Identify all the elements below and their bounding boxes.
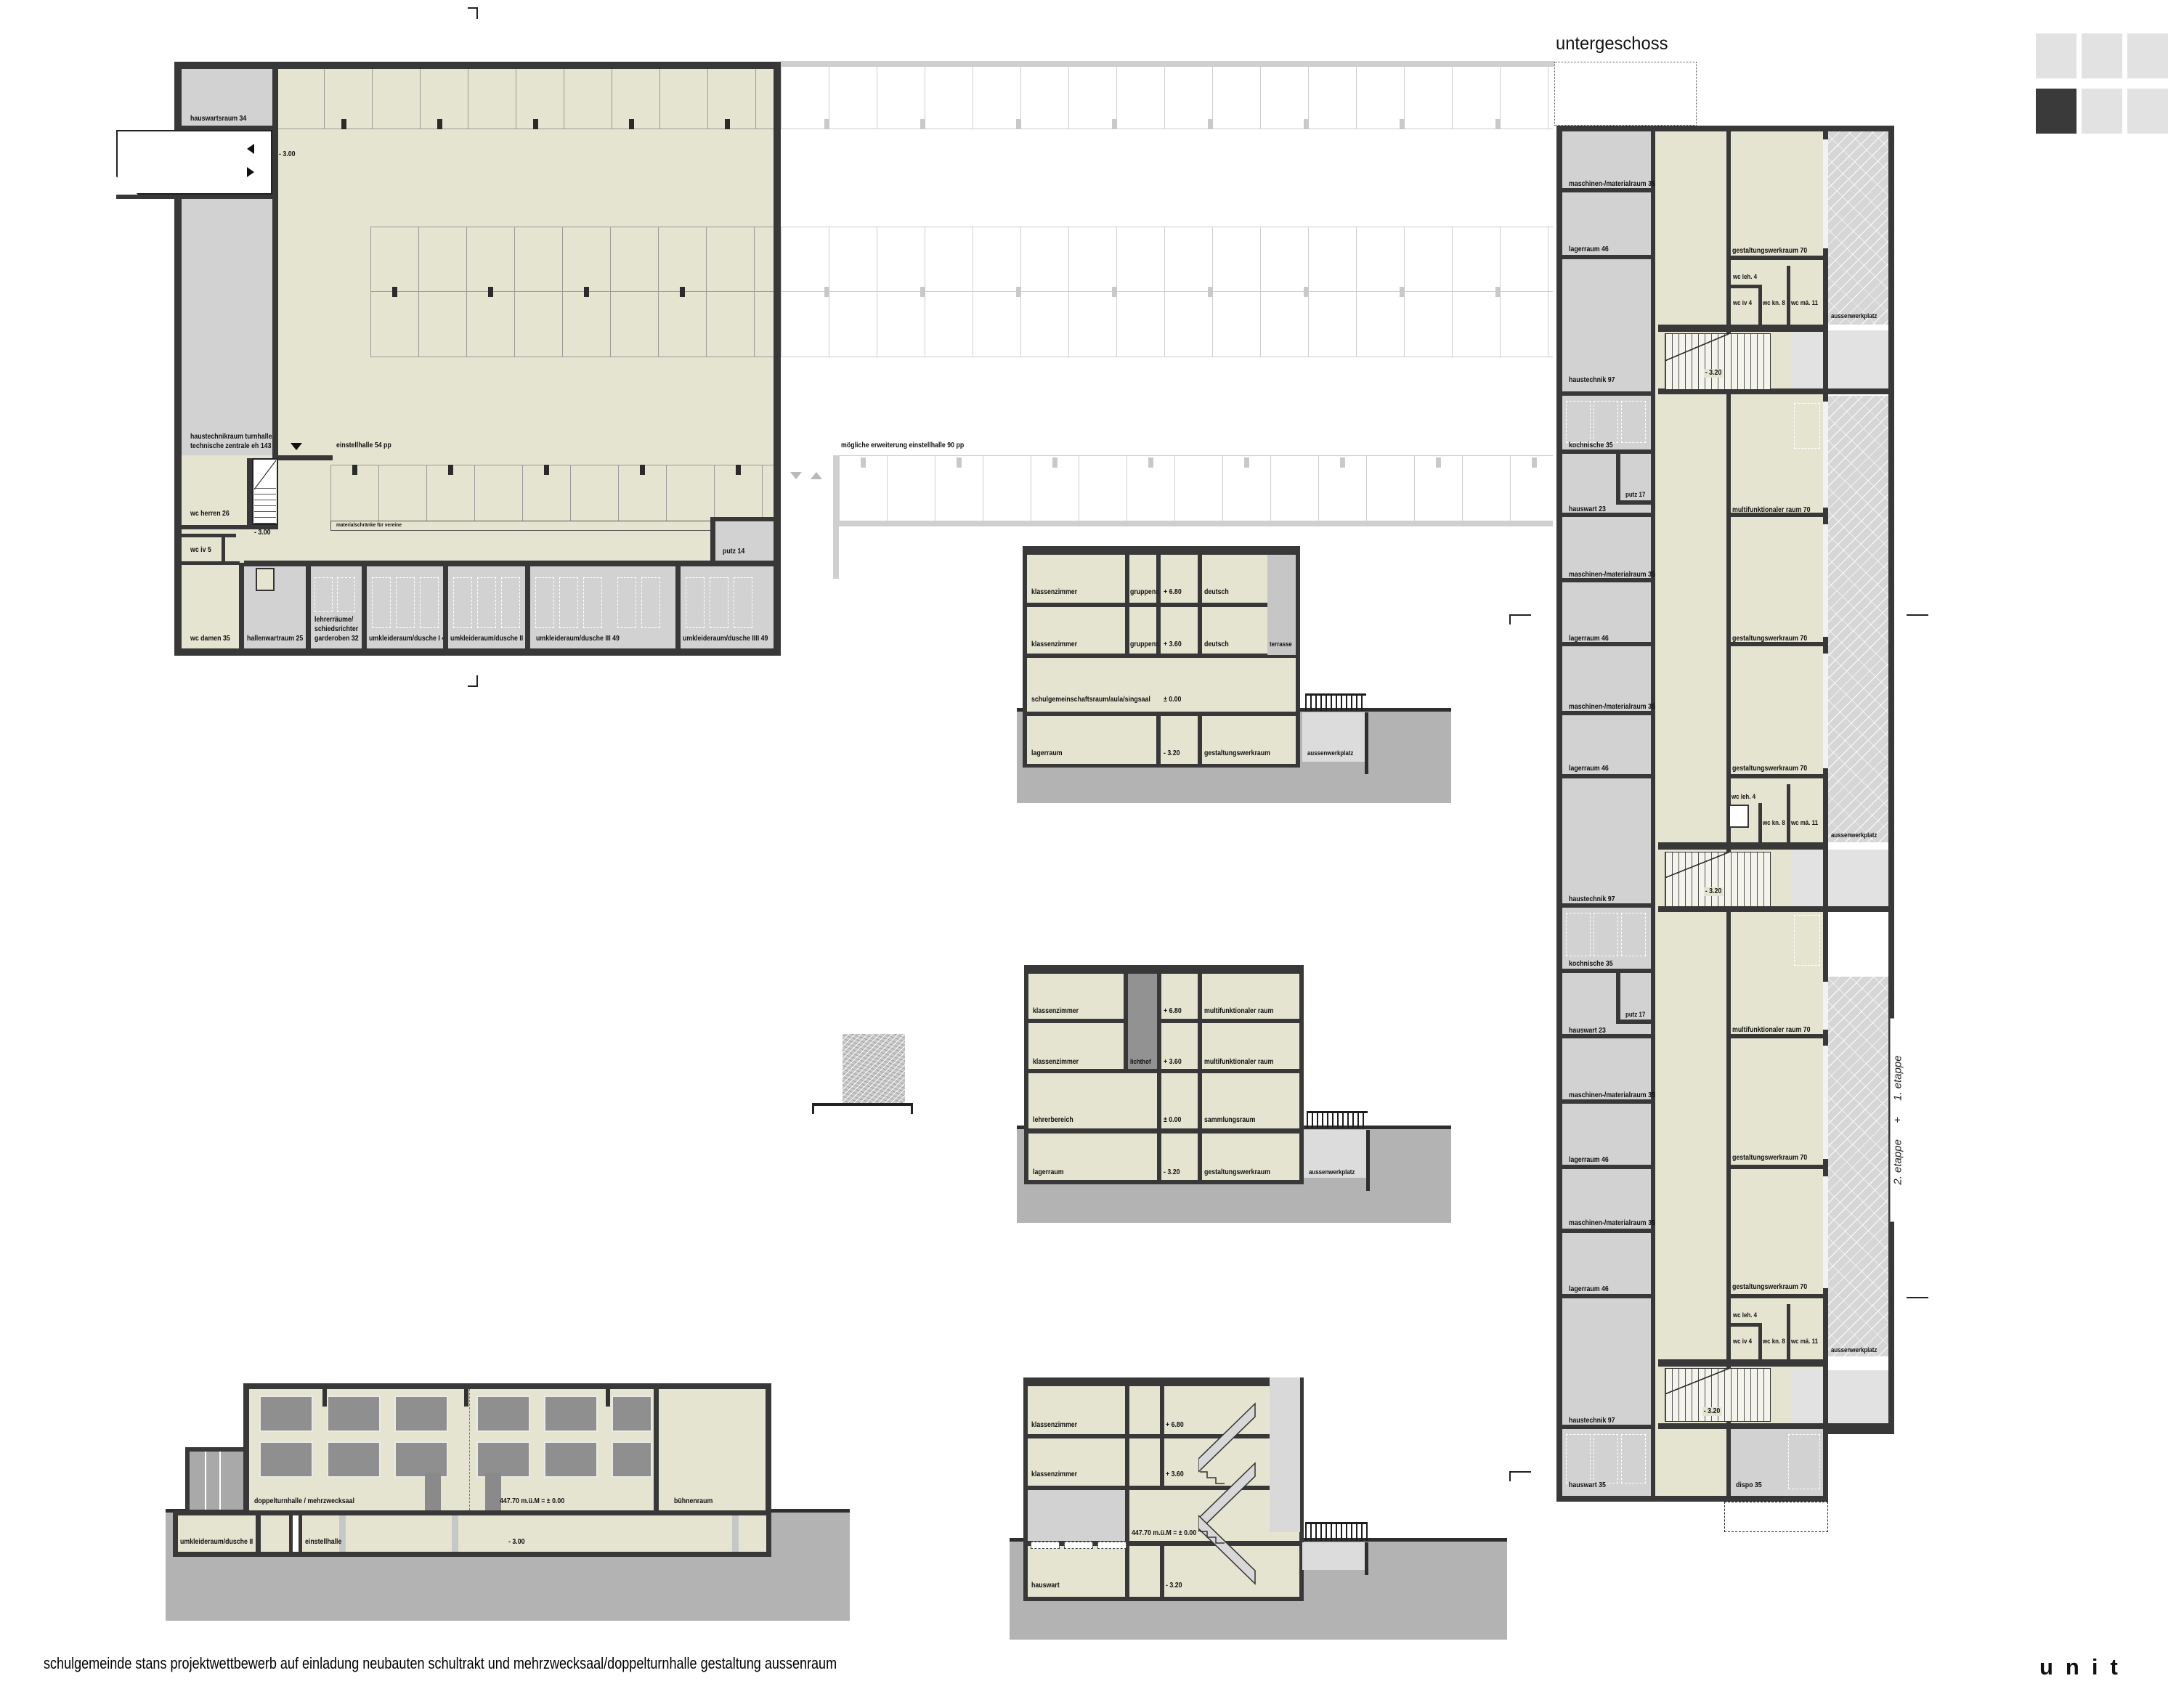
core-column <box>1270 1377 1300 1532</box>
room-label: maschinen-/materialraum 35 <box>1569 703 1655 712</box>
level-label: + 3.60 <box>1164 1058 1182 1067</box>
wall <box>174 126 272 130</box>
level-label: ± 0.00 <box>1164 1116 1181 1125</box>
basement-column <box>339 1515 346 1552</box>
room-label: multifunktionaler raum <box>1204 1058 1273 1067</box>
wall <box>306 566 311 648</box>
wall <box>1125 1490 1129 1541</box>
ramp-arrow-left-icon <box>247 144 254 154</box>
hall-window <box>259 1441 313 1478</box>
room-label: terrasse <box>1270 640 1292 648</box>
extension-edge <box>833 521 1553 526</box>
window-strip <box>1823 524 1828 637</box>
hall-label: einstellhalle 54 pp <box>336 441 391 450</box>
room-label: gestaltungswerkraum <box>1204 749 1270 758</box>
fixture <box>1594 913 1618 956</box>
roof-post <box>464 1389 468 1407</box>
room-label: wc iv 5 <box>190 546 211 555</box>
level-label: + 3.60 <box>1166 1470 1184 1479</box>
wall <box>1658 1359 1823 1367</box>
fixture <box>337 577 355 612</box>
room-label: gruppenr. <box>1130 640 1160 649</box>
wall <box>174 534 236 537</box>
level-label: - 3.20 <box>1704 887 1723 896</box>
level-label: 447.70 m.ü.M = ± 0.00 <box>500 1497 564 1506</box>
level-label: - 3.20 <box>1704 369 1723 378</box>
room-label: hauswart 23 <box>1569 1027 1606 1035</box>
room-label: klassenzimmer <box>1031 1421 1077 1430</box>
wall <box>1787 1304 1790 1359</box>
wall <box>1731 285 1761 288</box>
fixture <box>1794 403 1820 449</box>
stair-diagonal <box>254 460 276 489</box>
etappe-plus-icon: + <box>1892 1117 1904 1123</box>
wall <box>654 1389 659 1510</box>
glass-mullion <box>219 1452 221 1510</box>
roof-post <box>606 1389 610 1407</box>
fixture <box>1566 1434 1591 1484</box>
legend-square <box>2127 33 2168 78</box>
wall <box>1726 774 1828 778</box>
room-haustechnik <box>1562 259 1651 396</box>
column-markers <box>341 119 774 129</box>
hall-door <box>425 1473 441 1510</box>
room-label: putz 14 <box>723 548 744 556</box>
stair-zigzag <box>1198 1386 1271 1597</box>
room-label: haustechnik 97 <box>1569 895 1615 904</box>
area-label: aussenwerkplatz <box>1307 749 1353 757</box>
wall <box>1658 842 1823 850</box>
section-mark <box>468 7 478 9</box>
dotted-outline <box>1554 62 1697 126</box>
wall <box>525 566 530 648</box>
room-label: hallenwartraum 25 <box>247 635 303 643</box>
room-label: kochnische 35 <box>1569 960 1613 969</box>
level-label: - 3.00 <box>254 529 271 537</box>
room-label: doppelturnhalle / mehrzwecksaal <box>254 1497 354 1506</box>
wc-label: wc leh. 4 <box>1733 1311 1757 1319</box>
wall <box>1198 555 1202 603</box>
fixture <box>396 577 415 628</box>
retaining-wall <box>1366 1130 1370 1191</box>
retaining-wall <box>1365 712 1368 774</box>
wc-label: wc kn. 8 <box>1763 1338 1785 1345</box>
stair-landing-ext <box>1792 330 1888 388</box>
wall <box>1726 1034 1828 1038</box>
fixture <box>1594 401 1618 443</box>
hall-annex-glass <box>190 1452 243 1510</box>
fixture <box>1621 913 1646 956</box>
hall-window <box>476 1396 530 1432</box>
level-label: + 6.80 <box>1164 588 1182 597</box>
wall <box>443 566 448 648</box>
room-label: wc damen 35 <box>190 635 230 643</box>
tree-post <box>911 1103 913 1114</box>
retaining-wall <box>1365 1542 1368 1575</box>
section-mark <box>1509 1471 1511 1481</box>
drawing-sheet: untergeschoss materialschränke für verei… <box>0 0 2184 1689</box>
room-label: umkleideraum/dusche II 49 <box>450 635 532 643</box>
wc-label: wc mä. 11 <box>1791 1338 1818 1345</box>
aussenwerkplatz-area <box>1828 396 1888 842</box>
ramp-link-down-icon <box>790 472 802 479</box>
room-label: umkleideraum/dusche IIII 49 <box>683 635 768 643</box>
ramp-arrow-right-icon <box>247 167 254 177</box>
hall-window <box>327 1441 381 1478</box>
window-strip <box>1823 1176 1828 1288</box>
section-mark <box>1509 1471 1531 1473</box>
wall <box>1758 285 1762 325</box>
wc-label: wc mä. 11 <box>1791 819 1818 826</box>
fixture <box>453 577 472 628</box>
hall-window <box>544 1396 598 1432</box>
lichthof-shaft <box>1128 974 1157 1069</box>
level-label: - 3.20 <box>1166 1582 1182 1590</box>
room-label: einstellhalle <box>305 1538 341 1547</box>
wall <box>710 517 715 561</box>
extension-edge <box>781 61 1554 67</box>
wall <box>1124 974 1128 1069</box>
hall-window <box>544 1441 598 1478</box>
room-label: garderoben 32 <box>314 635 359 643</box>
room-label: hauswart 23 <box>1569 505 1606 514</box>
wall <box>1198 1134 1202 1180</box>
wall <box>174 525 278 529</box>
room-label: lagerraum 46 <box>1569 245 1609 254</box>
level-label: - 3.00 <box>279 150 296 159</box>
wall <box>244 561 774 566</box>
stair-diagonal <box>1665 1368 1730 1394</box>
gap <box>1828 842 1888 850</box>
stair-diagonal <box>1665 852 1730 878</box>
legend-square-active <box>2036 89 2077 134</box>
wall <box>1787 784 1790 842</box>
window-strip <box>1823 1046 1828 1159</box>
wc-label: wc iv 4 <box>1733 1338 1752 1345</box>
room-label: schulgemeinschaftsraum/aula/singsaal <box>1031 696 1150 704</box>
fixture <box>1794 915 1820 966</box>
wall <box>1125 555 1129 603</box>
room-label: klassenzimmer <box>1033 1007 1079 1016</box>
fixture <box>617 577 636 628</box>
wall <box>222 534 225 565</box>
room-label: hauswart <box>1031 1582 1060 1590</box>
section-mark <box>1509 614 1511 624</box>
window-strip <box>1823 982 1828 1030</box>
railing <box>1305 1522 1368 1541</box>
etappe-2-label: 2. etappe <box>1892 1139 1904 1185</box>
column-markers <box>392 287 774 297</box>
etappe-1-label: 1. etappe <box>1892 1055 1904 1101</box>
level-label: - 3.00 <box>508 1538 525 1547</box>
wall <box>1726 256 1828 260</box>
wall <box>1731 1323 1761 1327</box>
room-label: gestaltungswerkraum 70 <box>1732 247 1807 256</box>
etappe-marker: 2. etappe + 1. etappe <box>1891 1019 1906 1222</box>
legend-square <box>2082 89 2122 134</box>
stair-landing-ext <box>1792 1370 1888 1429</box>
gap <box>1828 325 1888 330</box>
railing <box>1307 1111 1368 1128</box>
page-title: untergeschoss <box>1556 35 1668 53</box>
unit-logo: unit <box>2039 1656 2130 1678</box>
room-label: haustechnikraum turnhalle/ <box>190 433 274 441</box>
fixture <box>1064 1542 1093 1549</box>
basement-column <box>452 1515 458 1552</box>
wall <box>1125 1386 1129 1434</box>
room-label: hauswartsraum 34 <box>190 115 246 123</box>
wc-label: wc kn. 8 <box>1763 299 1785 306</box>
gap <box>1828 911 1888 977</box>
fixture <box>314 577 333 612</box>
fixture <box>1594 1434 1618 1484</box>
hall-window <box>259 1396 313 1432</box>
wall <box>272 69 278 465</box>
wall <box>1651 131 1655 1496</box>
wall <box>1658 1423 1888 1429</box>
window-strip <box>1823 402 1828 508</box>
room-label: klassenzimmer <box>1031 640 1077 649</box>
entry-arrow-icon <box>291 443 302 450</box>
hall-basement-floor <box>178 1515 766 1552</box>
level-label: + 6.80 <box>1166 1421 1184 1430</box>
wall <box>1658 906 1888 912</box>
wall <box>1160 1546 1164 1597</box>
room-label: gestaltungswerkraum <box>1204 1168 1270 1177</box>
stair-diagonal <box>1665 333 1730 361</box>
wall <box>278 455 333 460</box>
wall <box>1726 642 1828 646</box>
wall <box>1823 131 1828 1496</box>
fixture <box>372 577 391 628</box>
wall <box>247 458 252 525</box>
wall <box>1125 607 1129 654</box>
extension-label: mögliche erweiterung einstellhalle 90 pp <box>841 441 964 450</box>
wall <box>362 566 367 648</box>
room-label: lehrerräume/ <box>314 616 353 624</box>
room-label: putz 17 <box>1625 491 1645 498</box>
room-label: hauswart 35 <box>1569 1481 1606 1490</box>
aussenwerkplatz-area <box>1828 131 1888 325</box>
section-mark <box>1907 1297 1928 1298</box>
room-label: gestaltungswerkraum 70 <box>1732 1154 1807 1163</box>
wall <box>1198 716 1202 764</box>
wall <box>256 1515 261 1552</box>
level-label: 447.70 m.ü.M = ± 0.00 <box>1132 1529 1196 1538</box>
dashed-outline <box>1724 1502 1828 1532</box>
fixture <box>535 577 554 628</box>
room-label: kochnische 35 <box>1569 441 1613 450</box>
level-label: ± 0.00 <box>1164 696 1181 704</box>
room-label: gestaltungswerkraum 70 <box>1732 1283 1807 1292</box>
room-label: lagerraum 46 <box>1569 1285 1609 1294</box>
glass-mullion <box>205 1452 206 1510</box>
sunken-court <box>1302 1542 1366 1570</box>
shaft <box>256 568 275 591</box>
fixture <box>1097 1542 1126 1549</box>
wc-label: wc iv 4 <box>1733 299 1752 306</box>
shaft <box>293 1515 299 1552</box>
hall-window <box>612 1396 652 1432</box>
wall <box>1125 1546 1129 1597</box>
wall <box>299 1515 302 1552</box>
window-strip <box>1823 654 1828 768</box>
area-label: aussenwerkplatz <box>1309 1168 1355 1176</box>
fixture <box>1621 401 1646 443</box>
wall <box>1156 716 1161 764</box>
fixture <box>1621 1434 1646 1484</box>
room-label: lichthof <box>1130 1058 1151 1065</box>
hall-centerline <box>469 1389 470 1510</box>
legend-square <box>2082 33 2122 78</box>
wall <box>1726 513 1828 517</box>
wall <box>1157 1073 1161 1128</box>
room-label: dispo 35 <box>1736 1481 1762 1490</box>
room-label: wc herren 26 <box>190 510 230 518</box>
wall <box>1758 1323 1762 1359</box>
section-mark <box>468 685 478 687</box>
stair-treads <box>254 488 276 524</box>
room-label: putz 17 <box>1625 1011 1645 1018</box>
room-label: lehrerbereich <box>1033 1116 1073 1125</box>
column-markers <box>352 465 774 475</box>
wall <box>1726 1165 1828 1169</box>
area-label: aussenwerkplatz <box>1831 831 1877 839</box>
room-label: haustechnik 97 <box>1569 376 1615 385</box>
wc-label: wc mä. 11 <box>1791 299 1818 306</box>
level-label: - 3.20 <box>1164 1168 1180 1177</box>
room-label: klassenzimmer <box>1033 1058 1079 1067</box>
hall-window <box>612 1441 652 1478</box>
window-strip <box>1823 139 1828 248</box>
lockers-label: materialschränke für vereine <box>336 522 402 529</box>
level-label: - 3.20 <box>1164 749 1180 758</box>
area-label: aussenwerkplatz <box>1831 312 1877 320</box>
fixture <box>501 577 520 628</box>
room-label: maschinen-/materialraum 35 <box>1569 571 1655 579</box>
fixture <box>710 577 728 628</box>
wc-label: wc leh. 4 <box>1732 793 1755 800</box>
ramp <box>116 130 272 195</box>
fixture <box>641 577 660 628</box>
wall <box>1198 1073 1202 1128</box>
room-haustechnikraum <box>182 199 272 455</box>
section-mark <box>1907 614 1928 616</box>
room-label: gestaltungswerkraum 70 <box>1732 765 1807 773</box>
fixture <box>583 577 602 628</box>
room-label: multifunktionaler raum <box>1204 1007 1273 1016</box>
wall <box>1787 266 1790 325</box>
tree-post <box>812 1103 814 1114</box>
room-label: maschinen-/materialraum 35 <box>1569 180 1655 189</box>
room-label: schiedsrichter <box>314 625 358 634</box>
legend-square <box>2127 89 2168 134</box>
wall <box>1758 803 1762 842</box>
fixture <box>1566 913 1591 956</box>
room-label: maschinen-/materialraum 35 <box>1569 1091 1655 1100</box>
extension-columns <box>824 119 1553 129</box>
fixture <box>686 577 705 628</box>
legend-square <box>2036 33 2077 78</box>
wall <box>1157 974 1161 1069</box>
wall <box>1198 607 1202 654</box>
wc-label: wc leh. 4 <box>1733 273 1757 280</box>
room-label: haustechnik 97 <box>1569 1417 1615 1425</box>
hall-door <box>485 1473 501 1510</box>
ramp-link-up-icon <box>811 472 822 479</box>
level-label: - 3.20 <box>1702 1407 1721 1416</box>
wall <box>1160 1438 1164 1486</box>
tree-symbol <box>843 1034 905 1104</box>
wall <box>1125 1438 1129 1486</box>
railing <box>1305 693 1366 711</box>
fixture <box>477 577 496 628</box>
aussenwerkplatz-area <box>1828 977 1888 1356</box>
wc-label: wc kn. 8 <box>1763 819 1785 826</box>
extension-edge <box>833 455 839 579</box>
fixture <box>1031 1542 1060 1549</box>
fixture <box>734 577 752 628</box>
project-title: schulgemeinde stans projektwettbewerb au… <box>44 1656 837 1672</box>
room-label: umkleideraum/dusche I 49 <box>369 635 449 643</box>
stair-landing-ext <box>1792 850 1888 911</box>
wall <box>675 566 681 648</box>
room-label: sammlungsraum <box>1204 1116 1255 1125</box>
room-label: klassenzimmer <box>1031 588 1077 597</box>
hall-window <box>327 1396 381 1432</box>
wall <box>1726 1294 1828 1298</box>
section-mark <box>476 7 478 19</box>
room-label: umkleideraum/dusche III 49 <box>536 635 620 643</box>
room-label: umkleideraum/dusche II <box>180 1538 253 1547</box>
room-label: lagerraum <box>1031 749 1063 758</box>
room-label: lagerraum 46 <box>1569 635 1609 643</box>
extension-columns <box>824 287 1553 297</box>
gap <box>1828 1356 1888 1370</box>
room-label: deutsch <box>1204 640 1229 649</box>
room-haustechnik <box>1562 1298 1651 1429</box>
wall <box>1198 974 1202 1019</box>
room-label: technische zentrale eh 143 <box>190 442 272 451</box>
room-haustechnik <box>1562 778 1651 908</box>
roof-post <box>322 1389 327 1407</box>
room-label: deutsch <box>1204 588 1229 597</box>
wall <box>1160 1386 1164 1434</box>
wall <box>1157 1134 1161 1180</box>
level-label: + 3.60 <box>1164 640 1182 649</box>
sectionC-foyer <box>1028 1490 1125 1541</box>
wall <box>239 563 244 656</box>
area-label: aussenwerkplatz <box>1831 1346 1877 1354</box>
lift-fixture <box>1729 805 1749 828</box>
room-label: lagerraum 46 <box>1569 765 1609 773</box>
room-label: multifunktionaler raum 70 <box>1732 1026 1811 1035</box>
fixture <box>559 577 578 628</box>
level-label: + 6.80 <box>1164 1007 1182 1016</box>
room-label: klassenzimmer <box>1031 1470 1077 1479</box>
room-label: maschinen-/materialraum 35 <box>1569 1219 1655 1228</box>
wall <box>174 561 240 565</box>
fixture <box>420 577 439 628</box>
room-label: lagerraum 46 <box>1569 1156 1609 1165</box>
basement-column <box>732 1515 739 1552</box>
extension-columns <box>861 457 1553 468</box>
section-mark <box>1509 614 1531 616</box>
tree-base <box>812 1103 913 1106</box>
hall-window <box>394 1396 448 1432</box>
room-label: gruppenr. <box>1130 588 1160 597</box>
fixture <box>1566 401 1591 443</box>
